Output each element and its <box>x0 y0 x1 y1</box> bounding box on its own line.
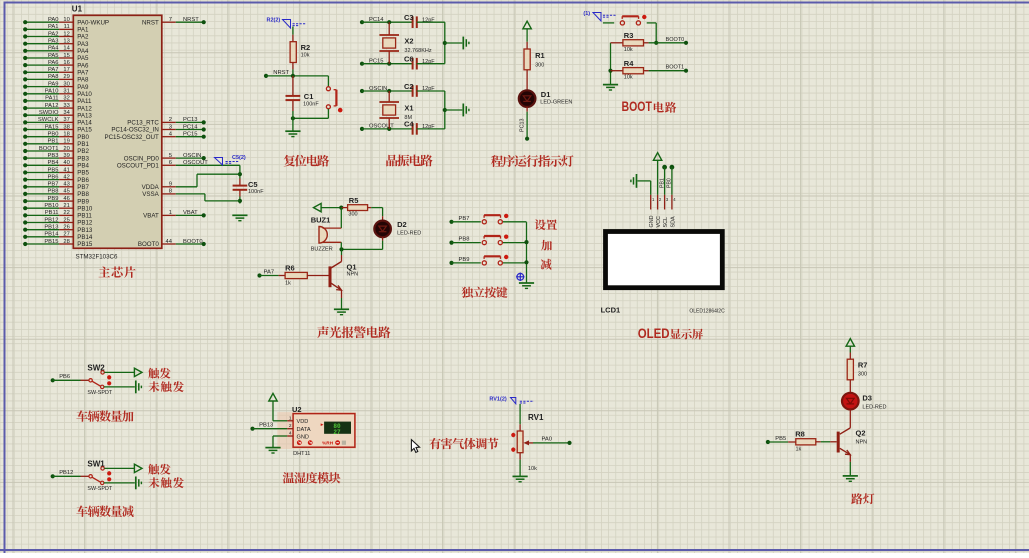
svg-text:PB11: PB11 <box>77 213 92 220</box>
svg-text:37: 37 <box>63 117 69 123</box>
svg-text:Q1: Q1 <box>347 263 357 272</box>
svg-text:OLED: OLED <box>638 326 670 341</box>
svg-text:PA13: PA13 <box>77 112 92 119</box>
svg-text:(1): (1) <box>583 11 590 17</box>
svg-text:PB6: PB6 <box>77 177 89 184</box>
svg-text:PA14: PA14 <box>77 120 92 127</box>
svg-text:PC14-OSC32_IN: PC14-OSC32_IN <box>111 127 158 134</box>
svg-text:28: 28 <box>63 239 69 245</box>
svg-text:R4: R4 <box>624 59 634 68</box>
svg-text:X1: X1 <box>404 104 413 113</box>
svg-text:U1: U1 <box>72 5 83 14</box>
svg-text:8: 8 <box>169 189 172 195</box>
svg-text:10k: 10k <box>301 53 310 59</box>
svg-text:LED-RED: LED-RED <box>862 404 886 410</box>
svg-text:PA5: PA5 <box>77 55 89 62</box>
svg-text:SW-SPDT: SW-SPDT <box>87 486 112 492</box>
svg-text:1: 1 <box>169 210 172 216</box>
svg-text:OSCOUT: OSCOUT <box>183 160 208 166</box>
svg-text:15: 15 <box>63 53 69 59</box>
svg-text:D1: D1 <box>541 90 551 99</box>
svg-text:LED-GREEN: LED-GREEN <box>540 100 572 106</box>
svg-text:18: 18 <box>63 132 69 138</box>
svg-text:VDD: VDD <box>297 419 309 425</box>
svg-text:C2: C2 <box>404 82 414 91</box>
svg-text:PA4: PA4 <box>48 46 59 52</box>
svg-text:100nF: 100nF <box>248 189 264 195</box>
svg-text:PA3: PA3 <box>48 39 59 45</box>
svg-text:VBAT: VBAT <box>183 210 198 216</box>
svg-text:12pF: 12pF <box>422 59 435 65</box>
svg-text:PA1: PA1 <box>48 24 59 30</box>
svg-text:38: 38 <box>63 124 69 130</box>
svg-text:PA9: PA9 <box>48 81 59 87</box>
svg-text:PB12: PB12 <box>59 470 73 476</box>
svg-text:PB1: PB1 <box>659 178 665 188</box>
svg-text:16: 16 <box>63 60 69 66</box>
svg-text:PB0: PB0 <box>77 134 89 141</box>
svg-text:1k: 1k <box>285 281 291 287</box>
svg-text:10k: 10k <box>624 47 633 53</box>
svg-text:PB10: PB10 <box>44 203 58 209</box>
svg-text:PA4: PA4 <box>77 48 89 55</box>
svg-text:PB3: PB3 <box>48 153 59 159</box>
svg-text:PC13_RTC: PC13_RTC <box>127 120 159 127</box>
svg-text:PA3: PA3 <box>77 41 89 48</box>
svg-text:U2: U2 <box>292 405 302 414</box>
svg-text:10k: 10k <box>624 75 633 81</box>
svg-text:VSSA: VSSA <box>142 191 159 198</box>
svg-text:PA2: PA2 <box>48 31 59 37</box>
svg-text:2: 2 <box>289 423 292 429</box>
svg-text:BUZZER: BUZZER <box>311 247 333 253</box>
svg-text:PA0: PA0 <box>48 17 59 23</box>
svg-text:4: 4 <box>289 431 292 437</box>
svg-text:12pF: 12pF <box>422 86 435 92</box>
svg-text:27: 27 <box>63 232 69 238</box>
svg-text:R1: R1 <box>535 51 545 60</box>
svg-text:PA12: PA12 <box>45 103 59 109</box>
svg-text:PB7: PB7 <box>77 184 89 191</box>
svg-text:VDDA: VDDA <box>142 184 160 191</box>
svg-text:PB11: PB11 <box>45 210 59 216</box>
svg-text:41: 41 <box>63 167 69 173</box>
svg-text:PB9: PB9 <box>48 196 59 202</box>
svg-text:LCD1: LCD1 <box>601 306 621 315</box>
svg-text:PA9: PA9 <box>77 84 89 91</box>
svg-text:PC15: PC15 <box>369 59 384 65</box>
svg-text:SW-SPDT: SW-SPDT <box>87 390 112 396</box>
svg-text:10: 10 <box>63 17 69 23</box>
svg-text:PB9: PB9 <box>77 198 89 205</box>
svg-text:PB8: PB8 <box>48 189 59 195</box>
svg-text:C5: C5 <box>248 180 258 189</box>
svg-text:PA11: PA11 <box>77 98 92 105</box>
svg-text:NPN: NPN <box>856 439 868 445</box>
svg-text:39: 39 <box>63 153 69 159</box>
svg-text:300: 300 <box>535 63 544 69</box>
svg-text:GND: GND <box>649 215 655 227</box>
svg-text:32: 32 <box>63 96 69 102</box>
svg-text:9: 9 <box>169 182 172 188</box>
svg-text:C3: C3 <box>404 13 414 22</box>
svg-text:PB15: PB15 <box>77 241 93 248</box>
svg-text:C5(2): C5(2) <box>232 155 246 161</box>
svg-text:PB0: PB0 <box>667 178 673 188</box>
svg-text:PA6: PA6 <box>77 62 89 69</box>
svg-text:PC14: PC14 <box>369 17 384 23</box>
svg-text:NRST: NRST <box>142 19 159 26</box>
svg-text:PC14: PC14 <box>183 124 198 130</box>
svg-text:RV1: RV1 <box>528 413 544 422</box>
svg-text:25: 25 <box>63 217 69 223</box>
svg-text:NRST: NRST <box>273 70 289 76</box>
svg-text:PB8: PB8 <box>77 191 89 198</box>
svg-text:PB5: PB5 <box>775 436 786 442</box>
svg-text:PB13: PB13 <box>44 225 58 231</box>
svg-text:27: 27 <box>333 429 341 436</box>
svg-text:PB7: PB7 <box>48 182 59 188</box>
svg-text:R8: R8 <box>795 430 805 439</box>
svg-text:D3: D3 <box>862 394 872 403</box>
svg-text:PB14: PB14 <box>44 232 59 238</box>
svg-text:VCC: VCC <box>656 216 662 227</box>
svg-text:PB8: PB8 <box>459 237 470 243</box>
svg-text:PB6: PB6 <box>48 174 59 180</box>
svg-text:17: 17 <box>63 67 69 73</box>
svg-text:D2: D2 <box>397 220 407 229</box>
svg-text:SWCLK: SWCLK <box>38 117 59 123</box>
svg-text:43: 43 <box>63 182 69 188</box>
svg-text:13: 13 <box>63 39 69 45</box>
svg-text:21: 21 <box>63 203 69 209</box>
svg-text:3: 3 <box>169 124 172 130</box>
svg-text:45: 45 <box>63 189 69 195</box>
svg-text:PB15: PB15 <box>44 239 58 245</box>
svg-text:PB4: PB4 <box>48 160 60 166</box>
svg-text:PA8: PA8 <box>48 74 59 80</box>
svg-text:BOOT0: BOOT0 <box>138 241 160 248</box>
svg-text:R3: R3 <box>624 31 634 40</box>
svg-text:42: 42 <box>63 174 69 180</box>
svg-text:PB10: PB10 <box>77 205 93 212</box>
svg-text:PA10: PA10 <box>77 91 92 98</box>
svg-text:BOOT0: BOOT0 <box>183 239 203 245</box>
svg-text:DATA: DATA <box>297 427 311 433</box>
svg-text:PB12: PB12 <box>77 220 93 227</box>
svg-text:PA6: PA6 <box>48 60 59 66</box>
svg-text:C1: C1 <box>304 92 314 101</box>
svg-text:R7: R7 <box>858 361 868 370</box>
svg-text:PB14: PB14 <box>77 234 93 241</box>
svg-text:BOOT: BOOT <box>622 99 653 114</box>
svg-text:12pF: 12pF <box>422 17 435 23</box>
svg-text:40: 40 <box>63 160 69 166</box>
svg-text:1: 1 <box>289 415 292 421</box>
svg-text:22: 22 <box>63 210 69 216</box>
svg-text:DHT11: DHT11 <box>293 451 310 457</box>
svg-text:BOOT1: BOOT1 <box>39 146 59 152</box>
svg-text:PC13: PC13 <box>519 119 525 133</box>
svg-text:PA0: PA0 <box>542 436 553 442</box>
svg-text:PA7: PA7 <box>77 70 89 77</box>
svg-text:7: 7 <box>169 17 172 23</box>
svg-text:12pF: 12pF <box>422 124 435 130</box>
svg-text:44: 44 <box>166 239 173 245</box>
svg-text:PC15-OSC32_OUT: PC15-OSC32_OUT <box>104 134 159 141</box>
svg-text:PB0: PB0 <box>48 132 59 138</box>
svg-text:PB1: PB1 <box>48 139 59 145</box>
svg-text:BUZ1: BUZ1 <box>311 216 331 225</box>
svg-text:PA1: PA1 <box>77 27 89 34</box>
svg-text:PA7: PA7 <box>264 269 275 275</box>
svg-text:PA2: PA2 <box>77 34 89 41</box>
svg-text:8M: 8M <box>404 115 412 121</box>
svg-text:PA0-WKUP: PA0-WKUP <box>77 19 109 26</box>
svg-text:SWDIO: SWDIO <box>39 110 59 116</box>
svg-text:NPN: NPN <box>347 272 359 278</box>
svg-text:OSCIN_PD0: OSCIN_PD0 <box>124 155 160 162</box>
svg-text:32.768KHz: 32.768KHz <box>404 48 431 54</box>
svg-text:SDA: SDA <box>670 216 676 227</box>
svg-text:PC13: PC13 <box>183 117 198 123</box>
svg-text:PC15: PC15 <box>183 132 198 138</box>
svg-text:300: 300 <box>858 371 867 377</box>
svg-text:PA8: PA8 <box>77 77 89 84</box>
svg-text:RV1(2): RV1(2) <box>489 396 506 402</box>
svg-text:PB13: PB13 <box>77 227 93 234</box>
svg-text:PB1: PB1 <box>77 141 89 148</box>
svg-text:1k: 1k <box>796 447 802 453</box>
svg-text:OLED12864I2C: OLED12864I2C <box>689 309 725 315</box>
svg-text:PA12: PA12 <box>77 105 92 112</box>
svg-text:11: 11 <box>64 24 70 30</box>
svg-text:PA11: PA11 <box>45 96 58 102</box>
svg-text:33: 33 <box>63 103 69 109</box>
svg-text:PA7: PA7 <box>48 67 59 73</box>
svg-text:STM32F103C6: STM32F103C6 <box>76 254 119 261</box>
svg-text:31: 31 <box>63 89 69 95</box>
svg-text:C4: C4 <box>404 120 414 129</box>
svg-text:VBAT: VBAT <box>143 213 159 220</box>
svg-text:29: 29 <box>63 74 69 80</box>
svg-text:46: 46 <box>63 196 69 202</box>
svg-text:PA5: PA5 <box>48 53 59 59</box>
svg-text:PB3: PB3 <box>77 155 89 162</box>
svg-text:PB9: PB9 <box>459 257 470 263</box>
svg-text:PA10: PA10 <box>45 89 59 95</box>
svg-text:300: 300 <box>348 211 357 217</box>
svg-text:PB5: PB5 <box>48 167 59 173</box>
svg-text:R5: R5 <box>349 196 359 205</box>
svg-text:R6: R6 <box>285 264 295 273</box>
svg-text:NRST: NRST <box>183 17 199 23</box>
svg-text:PA15: PA15 <box>77 127 92 134</box>
svg-text:5: 5 <box>169 153 172 159</box>
svg-text:PB12: PB12 <box>44 217 58 223</box>
svg-text:26: 26 <box>63 225 69 231</box>
svg-text:C6: C6 <box>404 55 414 64</box>
svg-text:BOOT1: BOOT1 <box>666 65 685 71</box>
svg-text:14: 14 <box>63 46 70 52</box>
svg-text:OSCIN: OSCIN <box>369 86 387 92</box>
svg-text:%RH: %RH <box>322 441 334 447</box>
svg-text:12: 12 <box>63 31 69 37</box>
svg-text:X2: X2 <box>404 37 413 46</box>
svg-text:OSCOUT_PD1: OSCOUT_PD1 <box>117 163 160 170</box>
svg-text:LED-RED: LED-RED <box>397 231 421 237</box>
svg-text:2: 2 <box>169 117 172 123</box>
svg-text:PB5: PB5 <box>77 170 89 177</box>
svg-text:PB13: PB13 <box>259 423 273 429</box>
svg-text:BOOT0: BOOT0 <box>666 37 685 43</box>
svg-text:20: 20 <box>63 146 69 152</box>
svg-text:100nF: 100nF <box>303 102 319 108</box>
svg-text:PA15: PA15 <box>45 124 59 130</box>
svg-text:34: 34 <box>63 110 70 116</box>
svg-text:30: 30 <box>63 81 69 87</box>
svg-text:OSCIN: OSCIN <box>183 153 201 159</box>
svg-text:R2: R2 <box>301 43 311 52</box>
svg-text:10k: 10k <box>528 466 537 472</box>
svg-text:19: 19 <box>63 139 69 145</box>
svg-text:OSCOUT: OSCOUT <box>369 124 394 130</box>
svg-text:PB7: PB7 <box>459 216 470 222</box>
svg-text:R2(2): R2(2) <box>267 18 281 24</box>
svg-text:PB6: PB6 <box>59 374 70 380</box>
svg-text:Q2: Q2 <box>856 429 866 438</box>
svg-text:GND: GND <box>297 435 309 441</box>
svg-text:PB2: PB2 <box>77 148 89 155</box>
svg-text:SCL: SCL <box>663 217 669 228</box>
svg-text:6: 6 <box>169 160 172 166</box>
svg-text:PB4: PB4 <box>77 163 89 170</box>
